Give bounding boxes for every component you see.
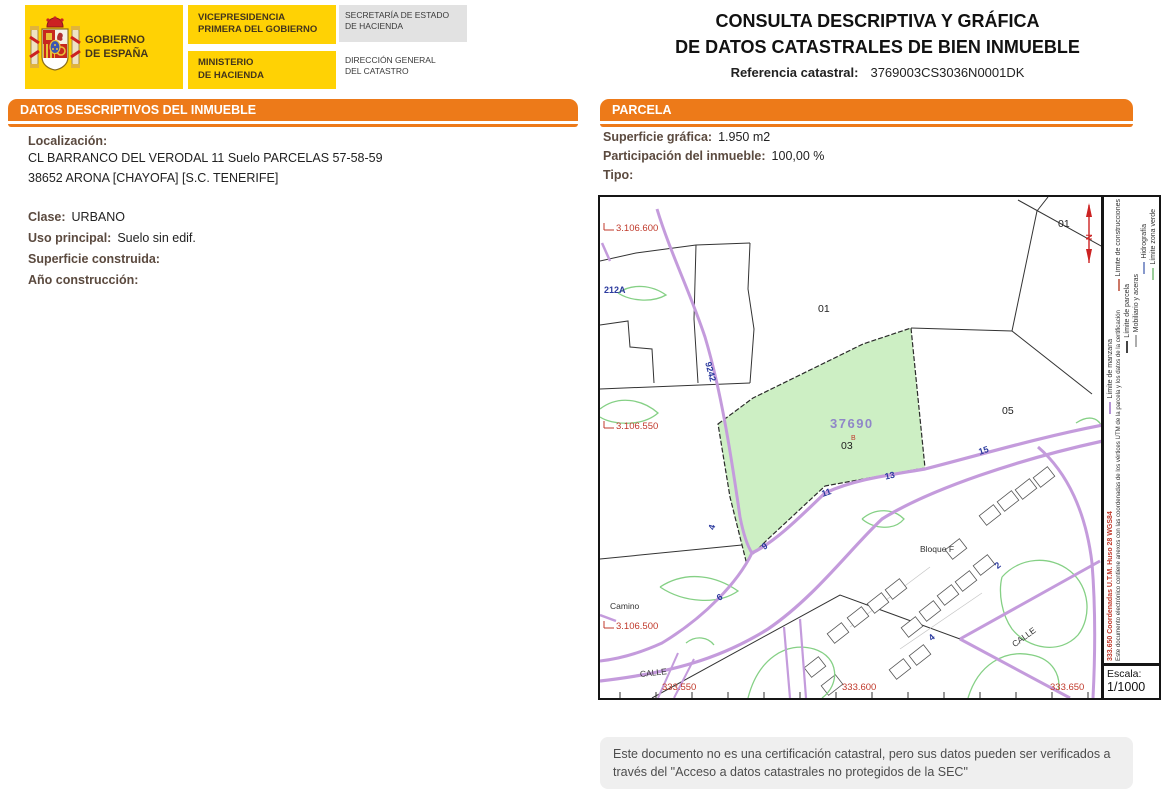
scale-label: Escala: [1107,668,1156,680]
legend-row-4: Mobiliario y aceras [1132,199,1141,661]
field-superficie-grafica: Superficie gráfica:1.950 m2 [603,128,1123,147]
direccion-label: DIRECCIÓN GENERAL DEL CATASTRO [339,55,467,78]
legend-item-mobiliario: Mobiliario y aceras [1133,274,1140,347]
north-label: N [1085,234,1094,240]
legend-item-zona-verde: Límite zona verde [1150,209,1157,280]
field-tipo: Tipo: [603,166,1123,185]
coord-label-x0: 333.550 [662,682,696,693]
scale-box: Escala: 1/1000 [1103,665,1161,700]
reference-value: 3769003CS3036N0001DK [870,65,1024,80]
parcel-label-212A: 212A [604,285,626,295]
header-logo: GOBIERNO DE ESPAÑA VICEPRESIDENCIA PRIME… [25,5,467,89]
parcela-content: Superficie gráfica:1.950 m2 Participació… [603,128,1123,185]
coord-label-y1: 3.106.550 [616,421,658,432]
north-arrow-icon: N [1085,203,1094,263]
parcel-label-01-topright: 01 [1058,218,1070,230]
section-header-parcela: PARCELA [600,99,1133,121]
parcel-label-05: 05 [1002,405,1014,417]
secretaria-block: SECRETARÍA DE ESTADO DE HACIENDA DIRECCI… [339,5,467,89]
gobierno-label: GOBIERNO DE ESPAÑA [85,33,148,62]
legend-row-6: Límite zona verde [1149,199,1158,661]
coord-label-y0: 3.106.600 [616,223,658,234]
street-number-11: 11 [820,486,832,498]
address-line2: 38652 ARONA [CHAYOFA] [S.C. TENERIFE] [28,168,568,188]
section-header-underline [8,124,578,127]
construcciones-line-swatch [1118,279,1120,291]
scale-value: 1/1000 [1107,680,1156,694]
ministry-block: VICEPRESIDENCIA PRIMERA DEL GOBIERNO MIN… [188,5,336,89]
street-number-2: 2 [992,560,1002,571]
legend-item-parcela: Límite de parcela [1124,284,1131,353]
address-line1: CL BARRANCO DEL VERODAL 11 Suelo PARCELA… [28,148,568,168]
hidrografia-line-swatch [1143,262,1145,274]
reference-label: Referencia catastral: [731,65,859,80]
field-clase: Clase:URBANO [28,207,568,228]
title-line2: DE DATOS CATASTRALES DE BIEN INMUEBLE [590,34,1165,60]
gobierno-block: GOBIERNO DE ESPAÑA [25,5,183,89]
legend-item-manzana: Límite de manzana [1107,339,1114,414]
coord-label-y2: 3.106.500 [616,621,658,632]
section-header-datos-descriptivos: DATOS DESCRIPTIVOS DEL INMUEBLE [8,99,578,121]
road-code-label: 9242 [703,361,718,383]
secretaria-label: SECRETARÍA DE ESTADO DE HACIENDA [339,5,467,42]
calle-label-left: CALLE [639,666,667,679]
legend-item-construcciones: Límite de construcciones [1115,199,1122,291]
street-number-13: 13 [884,470,896,482]
legend-rotated-strip: 333.650 Coordenadas U.T.M. Huso 28 WGS84… [1106,199,1158,661]
map-canvas: N 3.106.600 3.106.550 3.106.500 333.550 … [598,195,1103,700]
utm-coords-note: 333.650 Coordenadas U.T.M. Huso 28 WGS84 [1107,511,1114,661]
coord-label-x1: 333.600 [842,682,876,693]
field-uso-principal: Uso principal:Suelo sin edif. [28,228,568,249]
localizacion-label: Localización: [28,134,568,148]
spain-coat-of-arms-icon [29,15,81,79]
field-ano-construccion: Año construcción: [28,270,568,291]
page-title: CONSULTA DESCRIPTIVA Y GRÁFICA DE DATOS … [590,8,1165,80]
datos-descriptivos-content: Localización: CL BARRANCO DEL VERODAL 11… [28,134,568,291]
legend-row-2: Este documento electrónico contiene anex… [1115,199,1124,661]
section-header-underline [600,124,1133,127]
bloque-f-label: Bloque F [920,544,954,554]
legend-item-hidrografia: Hidrografía [1141,224,1148,274]
camino-label: Camino [610,601,640,611]
cadastral-reference: Referencia catastral:3769003CS3036N0001D… [590,65,1165,80]
buildings-cluster [804,467,1055,696]
map-drawing: N 3.106.600 3.106.550 3.106.500 333.550 … [600,197,1101,698]
legend-row-3: Límite de parcela [1123,199,1132,661]
map-legend-sidebar: 333.650 Coordenadas U.T.M. Huso 28 WGS84… [1103,195,1161,665]
legend-row-1: 333.650 Coordenadas U.T.M. Huso 28 WGS84… [1106,199,1115,661]
mobiliario-line-swatch [1135,335,1137,347]
calle-label-right: CALLE [1010,625,1038,649]
certification-note: Este documento electrónico contiene anex… [1115,310,1122,661]
ministerio-label: MINISTERIO DE HACIENDA [188,51,336,90]
disclaimer-note: Este documento no es una certificación c… [600,737,1133,789]
field-participacion: Participación del inmueble:100,00 % [603,147,1123,166]
ministry-separator [188,44,336,51]
cadastral-map: N 3.106.600 3.106.550 3.106.500 333.550 … [598,195,1161,700]
manzana-label-37690: 37690 [830,416,874,431]
parcela-line-swatch [1126,341,1128,353]
zona-verde-line-swatch [1152,268,1154,280]
property-fields: Clase:URBANO Uso principal:Suelo sin edi… [28,207,568,291]
parcela-flag-b: B [851,435,856,442]
street-number-15: 15 [977,444,990,457]
street-number-4a: 4 [706,524,717,531]
title-line1: CONSULTA DESCRIPTIVA Y GRÁFICA [590,8,1165,34]
street-number-4b: 4 [926,632,936,643]
field-superficie-construida: Superficie construida: [28,249,568,270]
legend-row-5: Hidrografía [1140,199,1149,661]
manzana-line-swatch [1109,402,1111,414]
vicepresidencia-label: VICEPRESIDENCIA PRIMERA DEL GOBIERNO [188,5,336,44]
coordinate-ticks-red [604,223,614,628]
parcel-label-01: 01 [818,303,830,315]
coord-label-x2: 333.650 [1050,682,1084,693]
